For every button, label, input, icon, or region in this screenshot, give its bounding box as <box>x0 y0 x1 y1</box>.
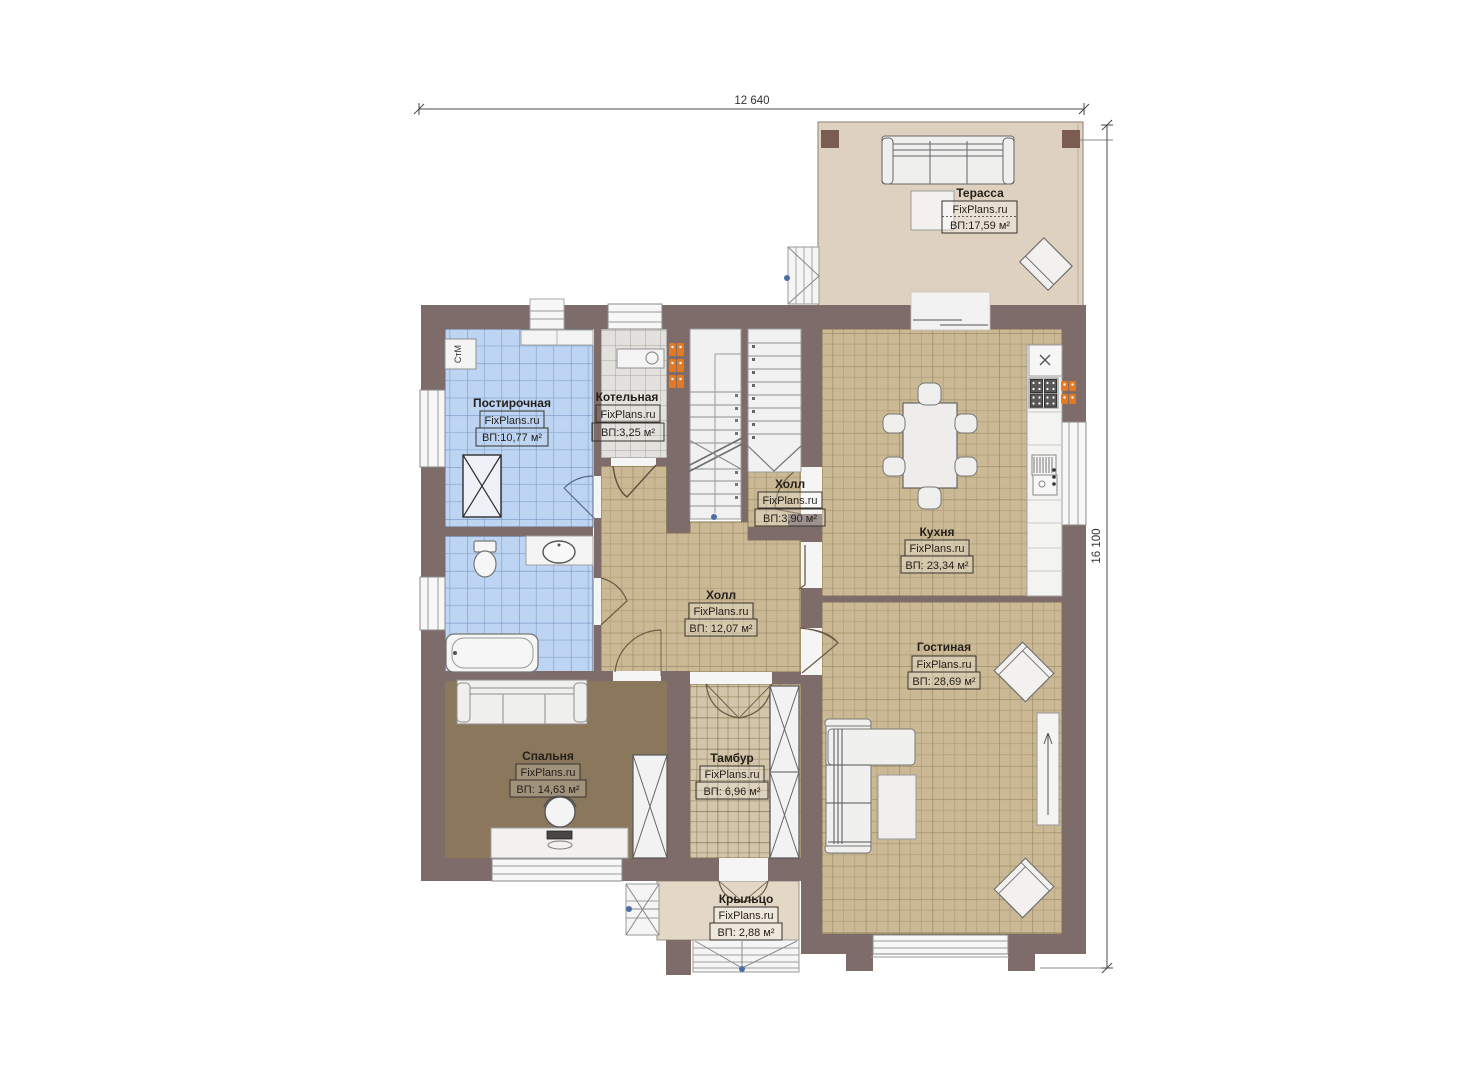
svg-text:Терасса: Терасса <box>956 186 1004 200</box>
svg-text:FixPlans.ru: FixPlans.ru <box>484 415 539 427</box>
svg-text:ВП: 6,96 м²: ВП: 6,96 м² <box>703 786 760 798</box>
svg-text:FixPlans.ru: FixPlans.ru <box>520 767 575 779</box>
svg-text:ВП:3,90 м²: ВП:3,90 м² <box>763 513 817 525</box>
svg-text:FixPlans.ru: FixPlans.ru <box>718 910 773 922</box>
svg-text:Тамбур: Тамбур <box>710 751 754 765</box>
svg-text:FixPlans.ru: FixPlans.ru <box>909 543 964 555</box>
svg-text:ВП:3,25 м²: ВП:3,25 м² <box>601 427 655 439</box>
svg-text:ВП: 12,07 м²: ВП: 12,07 м² <box>689 623 753 635</box>
svg-text:ВП: 2,88 м²: ВП: 2,88 м² <box>717 927 774 939</box>
svg-text:ВП: 14,63 м²: ВП: 14,63 м² <box>516 784 580 796</box>
svg-text:Котельная: Котельная <box>596 390 659 404</box>
svg-text:Крыльцо: Крыльцо <box>719 892 774 906</box>
svg-text:FixPlans.ru: FixPlans.ru <box>693 606 748 618</box>
svg-text:16 100: 16 100 <box>1091 528 1103 563</box>
svg-text:Кухня: Кухня <box>919 525 954 539</box>
svg-text:ВП:10,77 м²: ВП:10,77 м² <box>482 432 542 444</box>
svg-text:Спальня: Спальня <box>522 749 574 763</box>
svg-text:Гостиная: Гостиная <box>917 640 971 654</box>
svg-text:FixPlans.ru: FixPlans.ru <box>762 495 817 507</box>
svg-text:ВП: 28,69 м²: ВП: 28,69 м² <box>912 676 976 688</box>
svg-text:12 640: 12 640 <box>734 95 769 107</box>
svg-text:FixPlans.ru: FixPlans.ru <box>916 659 971 671</box>
svg-text:FixPlans.ru: FixPlans.ru <box>704 769 759 781</box>
svg-text:ВП:17,59 м²: ВП:17,59 м² <box>950 220 1010 232</box>
svg-text:FixPlans.ru: FixPlans.ru <box>600 409 655 421</box>
svg-text:FixPlans.ru: FixPlans.ru <box>952 204 1007 216</box>
svg-text:Постирочная: Постирочная <box>473 396 551 410</box>
svg-text:ВП: 23,34 м²: ВП: 23,34 м² <box>905 560 969 572</box>
svg-text:Холл: Холл <box>775 477 805 491</box>
svg-text:Холл: Холл <box>706 588 736 602</box>
svg-text:СтМ: СтМ <box>453 345 463 363</box>
